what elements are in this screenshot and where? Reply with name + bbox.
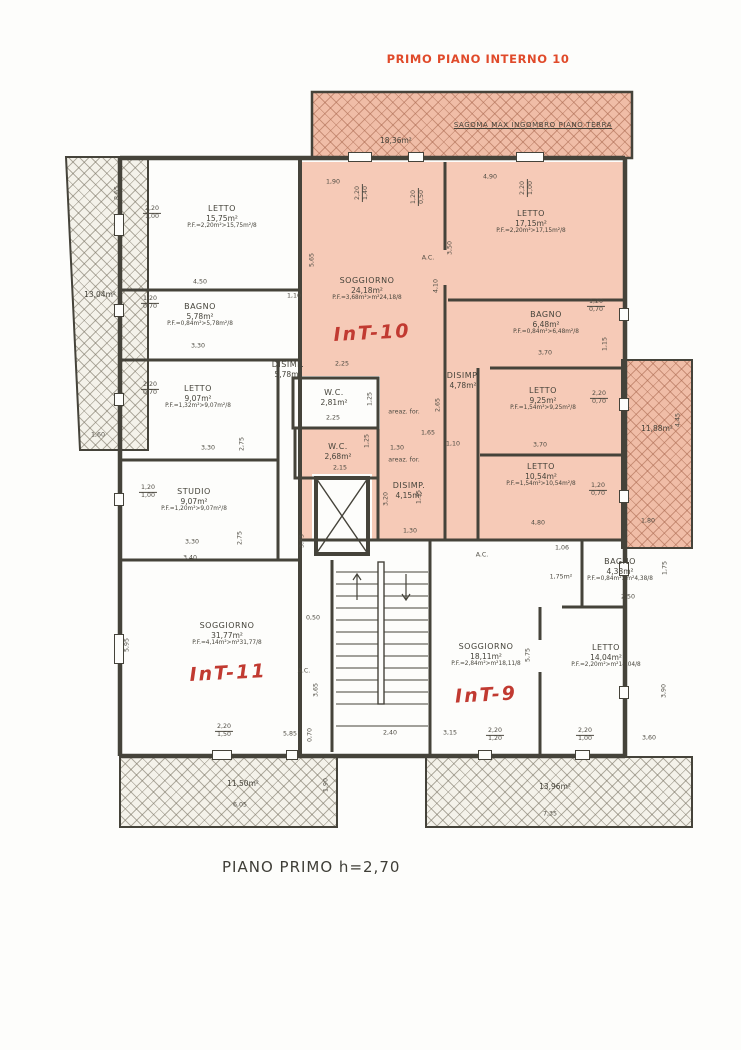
room-bagno-w: BAGNO 5,78m² P.F.=0,84m²>5,78m²/8 — [167, 302, 233, 329]
dim-label: 3,30 — [185, 540, 199, 547]
dim-label: 1,90 — [326, 180, 340, 187]
dim-label: 5,95 — [125, 638, 132, 652]
dim-label: 6,05 — [233, 803, 247, 810]
room-soggiorno-11: SOGGIORNO 31,77m² P.F.=4,14m²>m²31,77/8 — [192, 621, 261, 648]
dim-label: 3,70 — [533, 443, 547, 450]
dim-label: 4,10 — [434, 279, 441, 293]
window-opening — [619, 308, 629, 321]
window-opening — [516, 152, 544, 162]
window-opening — [348, 152, 372, 162]
sagoma-caption: SAGOMA MAX INGOMBRO PIANO TERRA — [454, 121, 612, 129]
window-opening — [212, 750, 232, 760]
dim-label: 2,65 — [436, 398, 443, 412]
dim-label: 3,40 — [183, 556, 197, 563]
handwritten-int-10: InT-10 — [333, 320, 411, 346]
window-opening — [114, 493, 124, 506]
dim-label: 3,30 — [201, 446, 215, 453]
dim-label: 4,80 — [531, 521, 545, 528]
room-soggiorno-10: SOGGIORNO 24,18m² P.F.=3,68m²>m²24,18/8 — [332, 276, 401, 303]
dim-label: 1,35 — [417, 490, 424, 504]
handwritten-int-9: InT-9 — [455, 682, 518, 707]
dim-label: 1,60 — [91, 433, 105, 440]
window-opening — [619, 686, 629, 699]
room-wc-10: W.C. 2,68m² — [324, 442, 351, 461]
dim-label: 2,75 — [240, 437, 247, 451]
dim-label: 2,201,00 — [520, 179, 534, 197]
window-opening — [575, 750, 590, 760]
balcony-right-area: 11,88m² — [641, 424, 673, 433]
room-letto-ne: LETTO 17,15m² P.F.=2,20m²>17,15m²/8 — [496, 209, 565, 236]
dim-label: 3,90 — [662, 684, 669, 698]
dim-label: 3,30 — [191, 344, 205, 351]
dim-label: 1,30 — [390, 446, 404, 453]
dim-label: 1,25 — [365, 434, 372, 448]
window-opening — [619, 398, 629, 411]
window-opening — [408, 152, 424, 162]
dim-label: 3,65 — [314, 683, 321, 697]
dim-label: 2,200,70 — [141, 382, 159, 396]
dim-label: 3,15 — [443, 731, 457, 738]
dim-label: 5,75 — [526, 648, 533, 662]
balcony-bottom-right-area: 13,96m² — [539, 782, 571, 791]
dim-label: A.C. — [476, 553, 489, 560]
dim-label: 1,80 — [641, 519, 655, 526]
dim-label: 2,201,00 — [576, 728, 594, 742]
dim-label: 7,35 — [543, 812, 557, 819]
window-opening — [619, 490, 629, 503]
dim-label: 2,15 — [333, 466, 347, 473]
window-opening — [114, 634, 124, 664]
room-letto-e2: LETTO 10,54m² P.F.=1,54m²>10,54m²/8 — [506, 462, 575, 489]
dim-label: 3,70 — [538, 351, 552, 358]
dim-label: 4,45 — [676, 413, 683, 427]
dim-label: 1,201,00 — [139, 485, 157, 499]
room-wc-11: W.C. 2,81m² — [320, 388, 347, 407]
dim-label: 1,30 — [403, 529, 417, 536]
dim-label: areaz. for. — [388, 410, 419, 417]
dim-label: areaz. for. — [388, 458, 419, 465]
dim-label: 1,200,70 — [587, 299, 605, 313]
room-letto-w: LETTO 9,07m² P.F.=1,32m²>9,07m²/8 — [165, 384, 231, 411]
room-soggiorno-9: SOGGIORNO 18,11m² P.F.=2,84m²>m²18,11/8 — [451, 642, 520, 669]
dim-label: 3,60 — [642, 736, 656, 743]
dim-label: 1,65 — [421, 431, 435, 438]
dim-label: 3,75 — [300, 534, 307, 548]
dim-label: 1,200,70 — [141, 296, 159, 310]
dim-label: 2,40 — [383, 731, 397, 738]
dim-label: 5,85 — [283, 732, 297, 739]
dim-label: 1,10 — [287, 294, 301, 301]
dim-label: 2,201,20 — [486, 728, 504, 742]
handwritten-int-11: InT-11 — [189, 660, 267, 686]
dim-label: 0,50 — [306, 616, 320, 623]
dim-label: 2,201,50 — [215, 724, 233, 738]
dim-label: 0,70 — [308, 728, 315, 742]
room-disimp-w: DISIMP. 5,78m² — [272, 360, 304, 379]
window-opening — [114, 304, 124, 317]
dim-label: 2,50 — [621, 595, 635, 602]
room-bagno-e: BAGNO 6,48m² P.F.=0,84m²>6,48m²/8 — [513, 310, 579, 337]
room-disimp-e: DISIMP. 4,78m² — [447, 371, 479, 390]
window-opening — [114, 393, 124, 406]
dim-label: 5,65 — [310, 253, 317, 267]
dim-label: 3,20 — [384, 492, 391, 506]
window-opening — [286, 750, 298, 760]
dim-label: A.C. — [298, 669, 311, 676]
dim-label: 2,201,40 — [355, 184, 369, 202]
dim-label: 2,200,70 — [590, 391, 608, 405]
dim-label: 1,10 — [446, 442, 460, 449]
dim-label: 4,50 — [193, 280, 207, 287]
dim-label: 2,201,00 — [143, 206, 161, 220]
sagoma-area-label: 18,36m² — [380, 136, 412, 145]
dim-label: 2,25 — [326, 416, 340, 423]
dim-label: 3,50 — [448, 241, 455, 255]
room-letto-nw: LETTO 15,75m² P.F.=2,20m²>15,75m²/8 — [187, 204, 256, 231]
dim-label: 8,65 — [115, 186, 122, 200]
window-opening — [478, 750, 492, 760]
dim-label: 2,75 — [238, 531, 245, 545]
balcony-left-area: 13,04m² — [84, 290, 116, 299]
room-letto-9: LETTO 14,04m² P.F.=2,20m²>m²14,04/8 — [571, 643, 640, 670]
dim-label: A.C. — [422, 256, 435, 263]
dim-label: 1,200,70 — [589, 483, 607, 497]
dim-label: 1,15 — [603, 337, 610, 351]
dim-label: 1,200,50 — [411, 188, 425, 206]
room-letto-e1: LETTO 9,25m² P.F.=1,54m²>9,25m²/8 — [510, 386, 576, 413]
dim-label: 2,25 — [335, 362, 349, 369]
dim-label: 1,06 — [555, 546, 569, 553]
dim-label: 1,90 — [324, 778, 331, 792]
dim-label: 1,75m² — [550, 575, 573, 582]
floor-plan-page: PRIMO PIANO INTERNO 10 — [0, 0, 741, 1050]
room-studio: STUDIO 9,07m² P.F.=1,20m²>9,07m²/8 — [161, 487, 227, 514]
balcony-bottom-left-area: 11,50m² — [227, 779, 259, 788]
dim-label: 1,75 — [663, 561, 670, 575]
room-bagno-9: BAGNO 4,38m² P.F.=0,84m²>m²4,38/8 — [587, 557, 653, 584]
window-opening — [114, 214, 124, 236]
dim-label: 1,25 — [368, 392, 375, 406]
dim-label: 4,90 — [483, 175, 497, 182]
